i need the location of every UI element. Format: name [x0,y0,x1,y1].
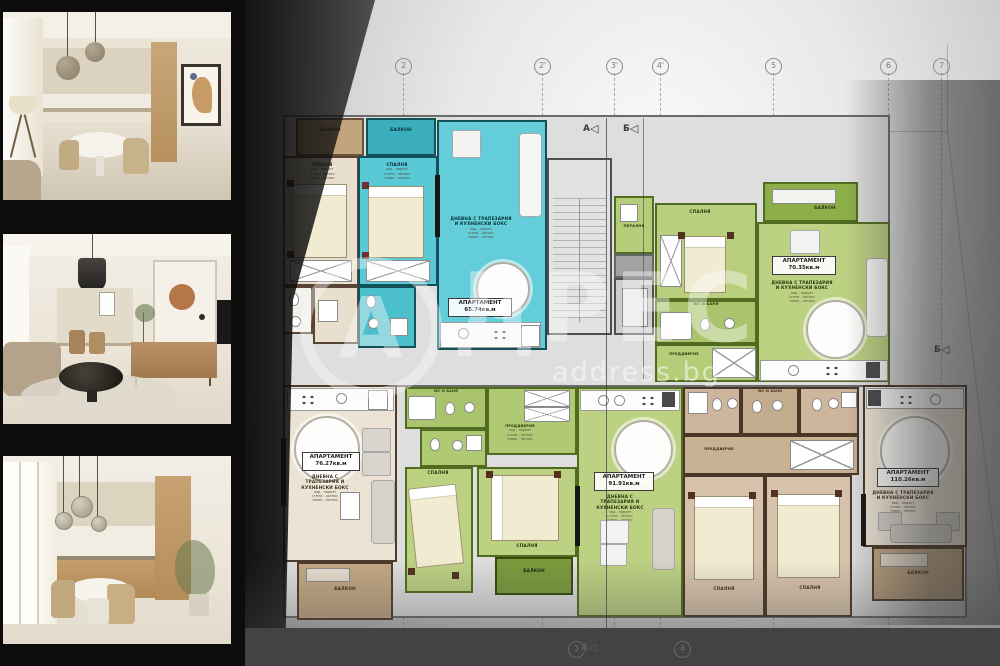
glass-pendant-icon [91,516,107,532]
bed [368,186,424,258]
apartment-tag-70: АПАРТАМЕНТ70.35кв.м [772,256,836,275]
living-label: ДНЕВНА С ТРАПЕЗАРИЯ И КУХНЕНСКИ БОКСпод … [450,216,512,239]
nightstand [688,492,695,499]
plant-pot [189,594,209,616]
interior-render-photo-3 [3,456,231,644]
chair [123,138,149,174]
small-art [99,292,115,316]
nightstand [554,471,561,478]
listing-image: 2 2' 3' 4' 5 6 7 БАЛКОН СПАЛНЯпод - парк… [0,0,1000,666]
bed [408,484,464,569]
pendant-lamp-icon [85,42,105,62]
shower [688,392,708,414]
nightstand [678,232,685,239]
window-frame [37,462,39,624]
nightstand [749,492,756,499]
bed-pillow [409,485,456,501]
wc-fixture [712,398,722,411]
bedroom-label: СПАЛНЯ [408,470,468,475]
stove [824,365,840,376]
plant-foliage [175,540,215,596]
grid-axis-bubble: 3' [606,58,623,75]
grid-axis-bubble: 4 [674,641,691,658]
coffee-table [340,492,360,520]
nightstand [835,490,842,497]
wc-fixture [812,398,822,411]
coffee-table-base [87,390,97,402]
bed-pillow [778,495,839,506]
watermark-logo-ring: А [300,257,442,399]
stool [87,598,109,624]
window-bar [435,175,440,237]
sofa-corner [3,160,41,200]
section-triangle-icon [588,641,596,654]
chair [69,330,85,354]
sink [614,395,625,406]
armchair [362,428,391,452]
dining-table [614,420,673,479]
armchair [600,520,629,544]
nightstand [771,490,778,497]
washing-machine [466,435,482,451]
armchair [790,230,820,254]
grid-axis-bubble: 5 [765,58,782,75]
laundry-label: ПЕРАЛНЯ [614,224,654,228]
balcony-teal [366,118,436,156]
watermark-logo-letter: А [311,268,431,388]
sofa [371,480,395,544]
ceiling [3,234,231,256]
art-dot [190,73,197,80]
bath-label: WC И БАНЯ [410,389,482,393]
pendant-lamp-icon [78,258,106,292]
bathtub [408,396,436,420]
bed-pillow [685,237,725,248]
lamp-cord [79,456,80,498]
grid-axis-bubble: 6 [880,58,897,75]
nightstand [486,471,493,478]
wc-fixture [445,402,455,415]
entry-label: ПРЕДДВЕРИЕ [690,447,748,451]
nightstand [362,182,369,189]
lamp-cord [63,456,64,514]
apartment-tag-91: АПАРТАМЕНТ91.91кв.м [594,472,654,491]
photo-column [0,0,245,666]
grid-axis-bubble: 4' [652,58,669,75]
bed-pillow [369,187,423,198]
backsplash [43,94,151,108]
dining-table [294,416,360,482]
bedroom-label: СПАЛНЯпод - паркет стени - латекс таван … [368,162,426,180]
chair [107,584,135,624]
balcony-label: БАЛКОН [800,205,850,210]
armchair [452,130,481,158]
sofa [519,133,542,217]
bed-pillow [492,476,503,540]
coffee-table [59,362,123,392]
art-shape [192,77,212,113]
stove [300,394,316,405]
art-dot [199,314,205,320]
entry-label: ПРЕДДВЕРИЕпод - паркет стени - латекс та… [492,424,548,441]
lamp-cord [97,456,98,518]
wc-fixture [430,438,440,451]
floor-lamp-shade [9,96,37,114]
lamp-cord [92,234,93,260]
living-label: ДНЕВНА С ТРАПЕЗАРИЯ И КУХНЕНСКИ БОКСпод … [590,494,650,523]
sink [828,398,839,409]
stove [640,395,656,406]
bath-label: WC И БАНЯ [744,389,796,393]
glass-pendant-icon [55,512,73,530]
bed [491,475,559,541]
wardrobe [524,390,570,407]
table-pedestal [96,156,104,176]
chair [59,140,79,170]
window-frame [19,462,21,624]
nightstand [727,232,734,239]
right-shadow [845,80,1000,625]
bedroom-label: СПАЛНЯ [670,209,730,214]
grid-axis-bubble: 2 [395,58,412,75]
pendant-lamp-icon [56,56,80,80]
balcony-label: БАЛКОН [366,127,436,132]
grid-axis-bubble: 2' [534,58,551,75]
sink [598,395,609,406]
wood-column [151,42,177,162]
armchair [362,452,391,476]
watermark-domain: address.bg [552,357,721,388]
tv [217,300,231,344]
bed-pillow [695,497,753,508]
wall-art [181,64,221,126]
watermark-wordmark: ДРЕС [452,262,757,357]
plant-foliage [135,304,155,322]
bathroom-brown-2 [741,387,799,435]
planter [772,189,836,204]
lamp-cord [67,12,68,58]
interior-render-photo-2 [3,234,231,424]
section-marker-a-bottom: А [581,641,596,654]
section-marker-b-top: Б [623,122,638,135]
wardrobe [524,407,570,422]
sink [336,393,347,404]
countertop [43,108,151,112]
section-triangle-icon [630,122,638,135]
washing-machine [620,204,638,222]
art-circle [169,284,195,310]
sink [772,400,783,411]
section-marker-a-top: А [583,122,598,135]
sideboard-leg [209,378,211,386]
sideboard [131,342,217,378]
chair [89,332,105,354]
interior-render-photo-1 [3,12,231,200]
section-triangle-icon [590,122,598,135]
window-light [3,462,57,624]
sink [727,398,738,409]
chair [51,580,75,618]
fridge [662,392,675,407]
sink [452,440,463,451]
sink [464,402,475,413]
bedroom-label: СПАЛНЯ [492,543,562,548]
lamp-cord [95,12,96,44]
lower-shadow [245,560,1000,628]
apartment-tag-76: АПАРТАМЕНТ76.27кв.м [302,452,360,471]
wc-fixture [752,400,762,413]
window-bar [575,486,580,546]
sink [788,365,799,376]
living-label: ДНЕВНА С ТРАПЕЗАРИЯ И КУХНЕНСКИ БОКСпод … [770,280,834,303]
glass-pendant-icon [71,496,93,518]
ground-band [245,628,1000,666]
